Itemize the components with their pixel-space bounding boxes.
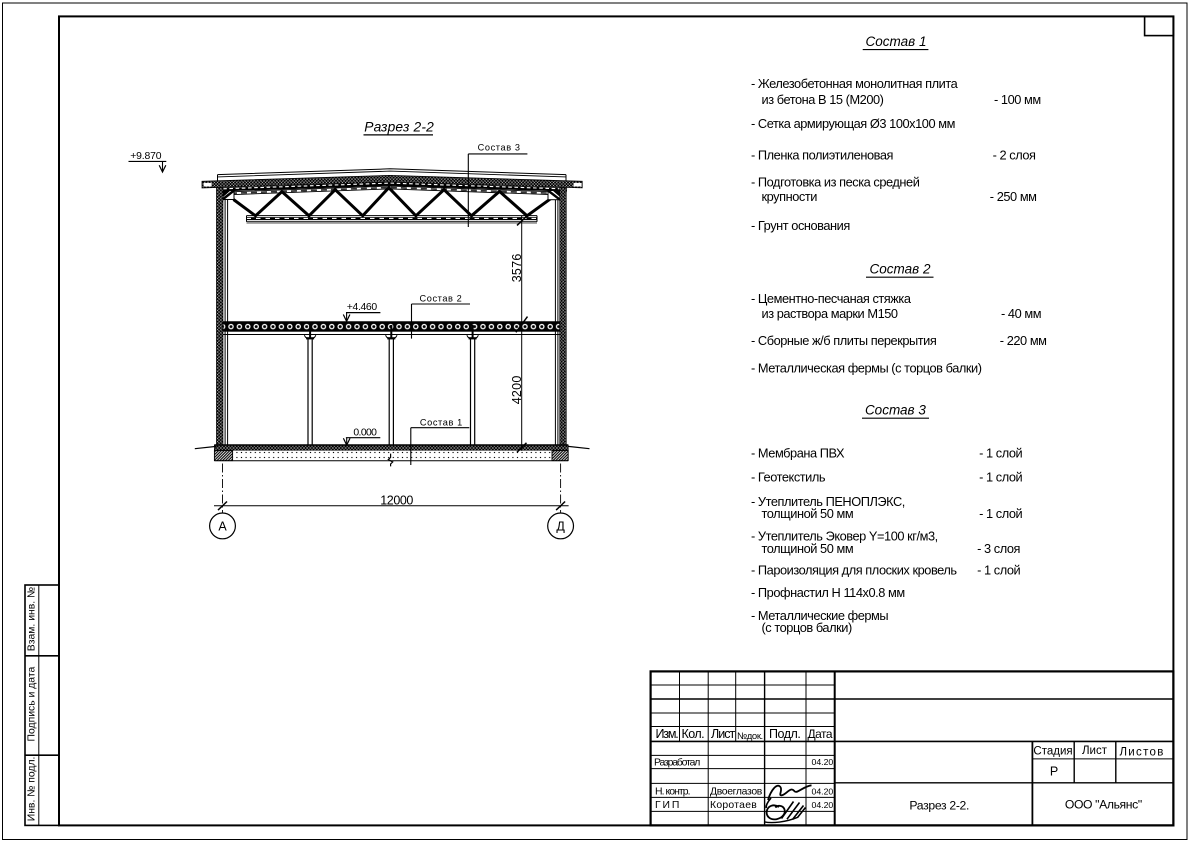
svg-text:Разработал: Разработал [654,756,700,768]
svg-text:0.000: 0.000 [353,428,377,439]
svg-text:- 1 слой: - 1 слой [977,563,1020,578]
svg-text:- Пароизоляция для плоских кро: - Пароизоляция для плоских кровель [751,563,957,578]
svg-text:крупности: крупности [762,189,818,204]
svg-text:толщиной 50 мм: толщиной 50 мм [762,506,854,521]
svg-text:Состав 2: Состав 2 [420,294,462,304]
svg-text:Разрез 2-2.: Разрез 2-2. [909,799,969,813]
svg-text:Состав 2: Состав 2 [870,262,931,277]
svg-text:4200: 4200 [510,376,524,405]
svg-text:- 250 мм: - 250 мм [990,189,1037,204]
svg-text:- 2 слоя: - 2 слоя [993,147,1036,162]
svg-text:Н. контр.: Н. контр. [655,787,691,798]
svg-text:- Металлическая фермы (с торцо: - Металлическая фермы (с торцов балки) [751,360,982,375]
svg-text:04.20: 04.20 [812,800,834,810]
svg-text:Р: Р [1050,765,1058,779]
svg-text:№док.: №док. [737,731,763,742]
svg-text:- 40 мм: - 40 мм [1001,306,1041,321]
svg-text:- Мембрана ПВХ: - Мембрана ПВХ [751,445,845,460]
svg-text:- Грунт основания: - Грунт основания [751,218,850,233]
svg-text:Состав 3: Состав 3 [865,403,926,418]
svg-text:- Геотекстиль: - Геотекстиль [751,470,826,485]
svg-text:- 1 слой: - 1 слой [979,470,1022,485]
svg-text:(с торцов балки): (с торцов балки) [762,620,852,635]
svg-text:+4.460: +4.460 [347,302,378,313]
svg-text:толщиной 50 мм: толщиной 50 мм [762,541,854,556]
svg-text:Лист: Лист [1082,745,1108,757]
svg-text:- 100 мм: - 100 мм [994,92,1041,107]
svg-text:- Профнастил Н 114х0.8 мм: - Профнастил Н 114х0.8 мм [751,585,905,600]
svg-text:Состав 3: Состав 3 [478,143,520,153]
svg-text:Состав 1: Состав 1 [420,417,462,427]
svg-text:- Пленка полиэтиленовая: - Пленка полиэтиленовая [751,147,893,162]
svg-text:из бетона В 15 (М200): из бетона В 15 (М200) [762,92,884,107]
svg-text:Подл.: Подл. [769,727,801,741]
svg-text:Двоеглазов: Двоеглазов [710,787,763,798]
svg-text:Состав 1: Состав 1 [866,34,927,49]
svg-text:Дата: Дата [808,727,833,741]
svg-text:Инв. № подл.: Инв. № подл. [27,757,38,822]
svg-text:Д: Д [556,520,565,534]
svg-text:- Цементно-песчаная стяжка: - Цементно-песчаная стяжка [751,291,912,306]
svg-text:из раствора марки М150: из раствора марки М150 [762,306,898,321]
svg-text:- Сетка армирующая Ø3 100х100: - Сетка армирующая Ø3 100х100 мм [751,116,955,131]
svg-text:04.20: 04.20 [812,757,834,767]
svg-text:+9.870: +9.870 [130,151,162,162]
svg-text:Стадия: Стадия [1033,746,1072,758]
svg-text:- Подготовка из песка средней: - Подготовка из песка средней [751,175,920,190]
svg-text:- 3 слоя: - 3 слоя [977,541,1020,556]
svg-text:ООО "Альянс": ООО "Альянс" [1065,798,1142,812]
svg-text:3576: 3576 [510,254,524,283]
svg-text:- 1 слой: - 1 слой [979,506,1022,521]
svg-text:04.20: 04.20 [812,786,834,796]
svg-text:Коротаев: Коротаев [710,800,757,811]
svg-text:Изм.: Изм. [656,727,679,741]
svg-text:Лист: Лист [711,727,735,741]
svg-text:А: А [218,520,227,534]
svg-text:- Сборные ж/б плиты перекрытия: - Сборные ж/б плиты перекрытия [751,333,937,348]
svg-text:Взам. инв. №: Взам. инв. № [27,587,38,651]
svg-text:- Железобетонная монолитная п: - Железобетонная монолитная плита [751,76,959,91]
svg-text:Разрез 2-2: Разрез 2-2 [364,120,434,135]
svg-text:12000: 12000 [380,493,413,507]
svg-text:ГИП: ГИП [655,800,679,811]
svg-text:Кол.: Кол. [682,727,705,741]
svg-text:Листов: Листов [1119,747,1163,759]
svg-text:- 1 слой: - 1 слой [979,445,1022,460]
svg-text:- 220 мм: - 220 мм [1000,333,1047,348]
svg-text:Подпись и дата: Подпись и дата [27,667,38,742]
